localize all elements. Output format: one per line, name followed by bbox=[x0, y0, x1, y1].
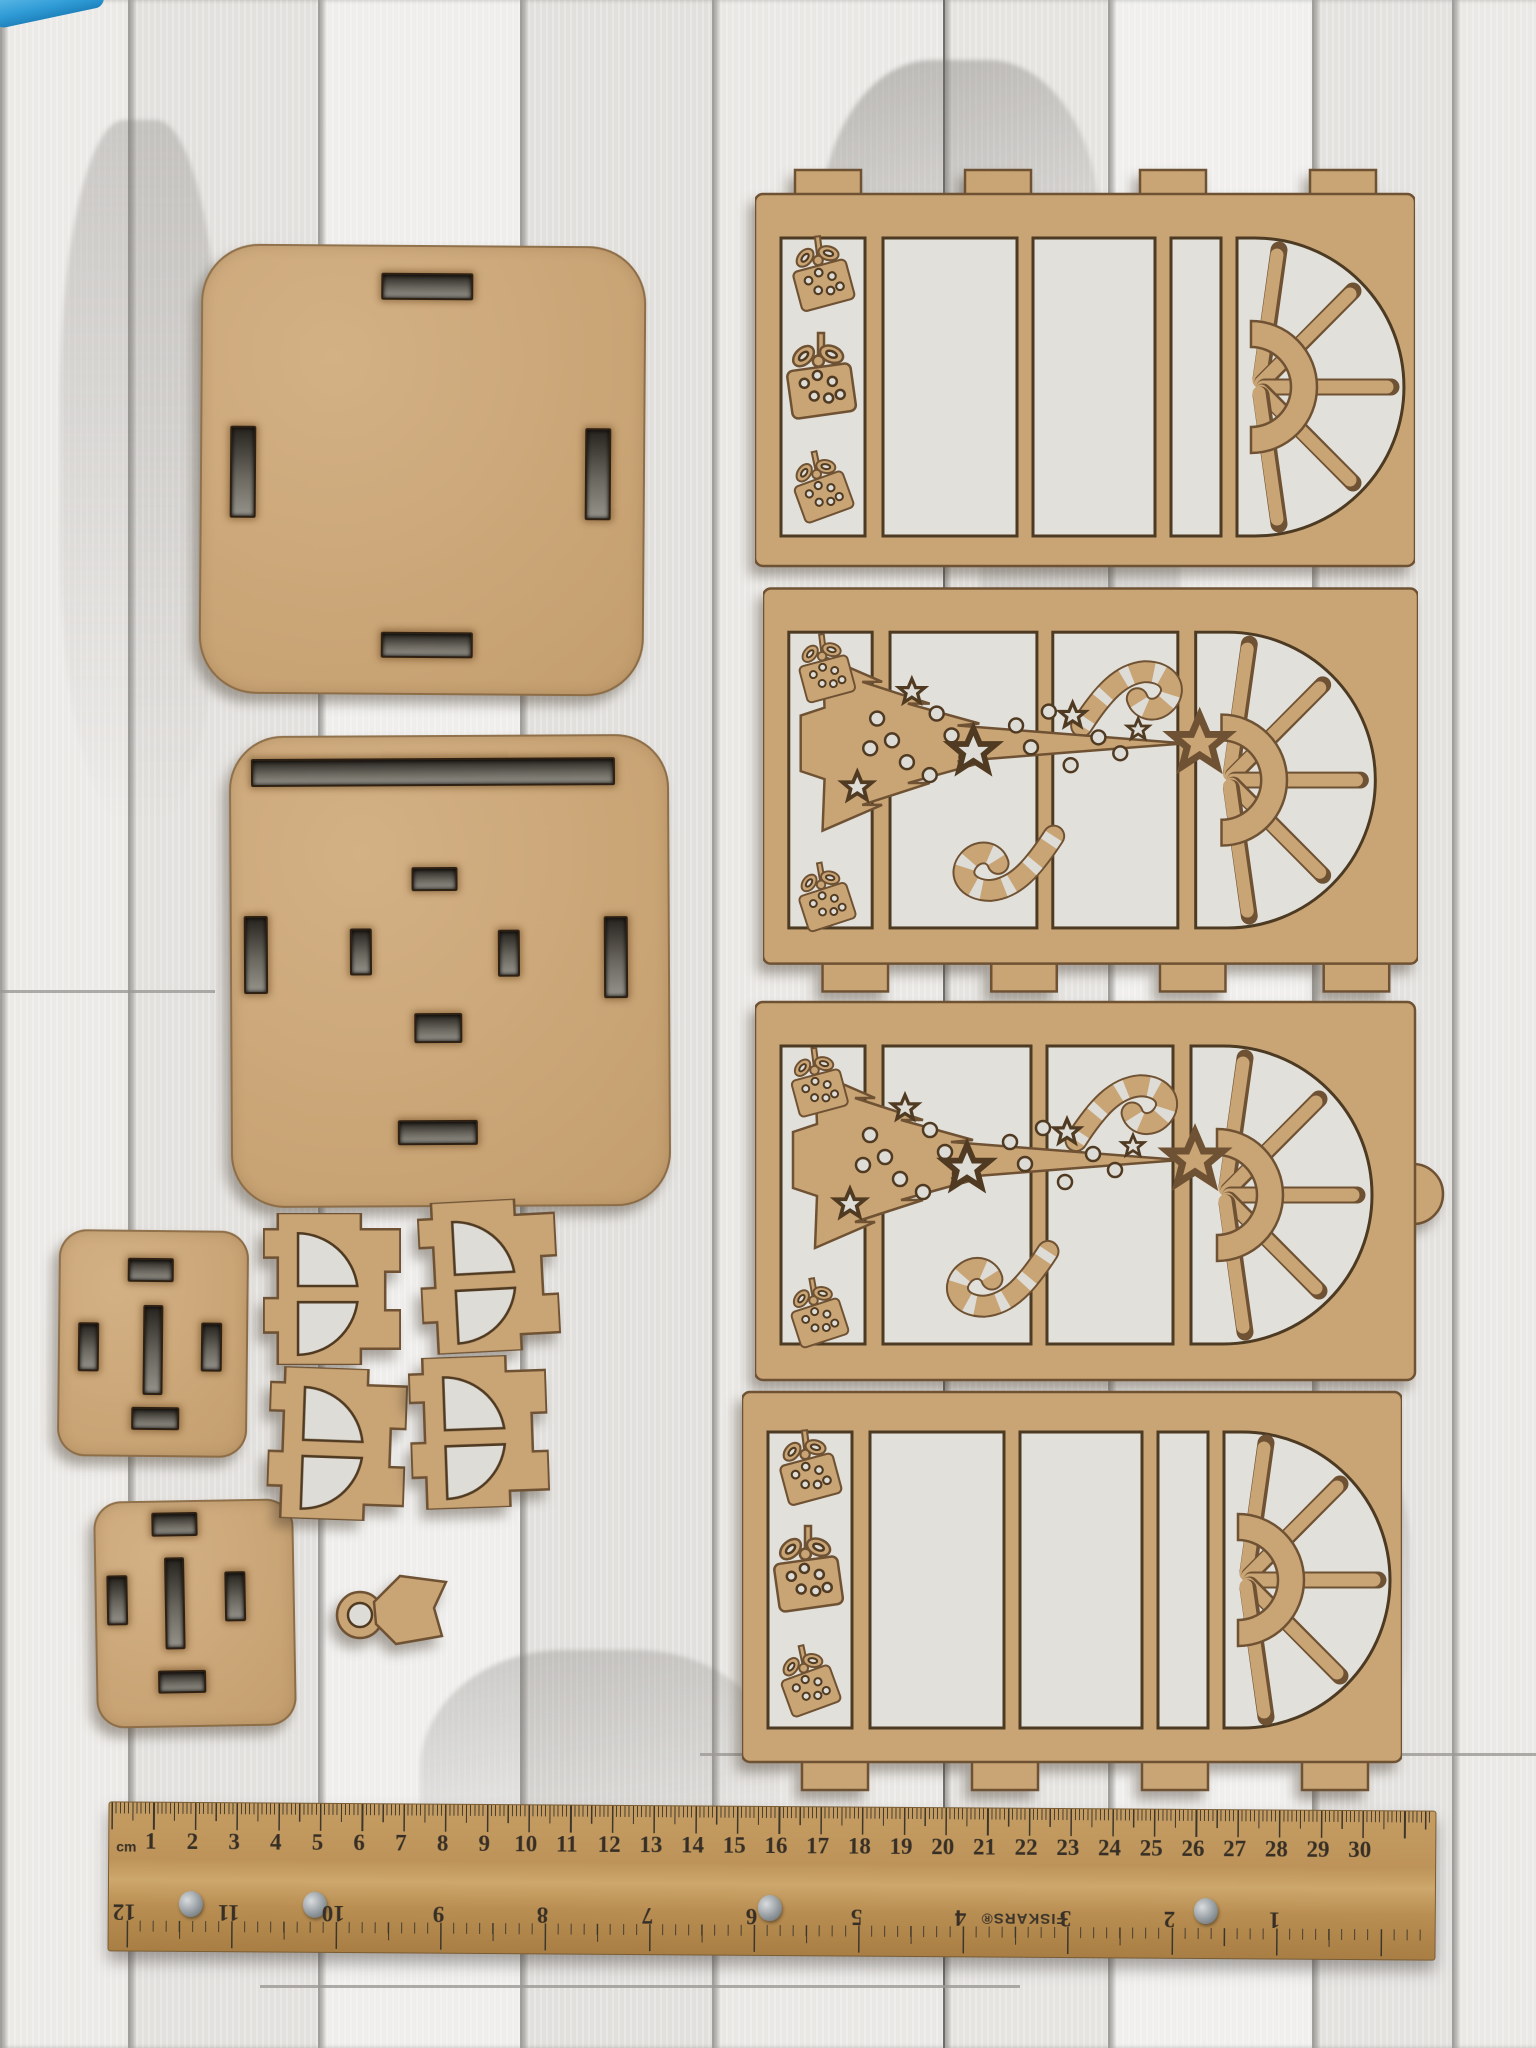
ruler-cm-number: 14 bbox=[681, 1832, 704, 1858]
arch-bracket-4 bbox=[407, 1354, 550, 1511]
large-slotted-backboard bbox=[198, 243, 646, 696]
ring-tag-piece bbox=[330, 1560, 455, 1650]
ruler-cm-number: 11 bbox=[556, 1831, 578, 1857]
ruler-cm-number: 30 bbox=[1348, 1837, 1371, 1863]
ruler-inch-number: 10 bbox=[322, 1900, 345, 1926]
ruler-cm-number: 12 bbox=[598, 1832, 621, 1858]
slot bbox=[201, 1323, 223, 1372]
ruler-inch-number: 8 bbox=[537, 1901, 549, 1927]
ruler-cm-number: 6 bbox=[353, 1830, 365, 1856]
slot bbox=[604, 916, 628, 998]
ruler-cm-number: 10 bbox=[514, 1831, 537, 1857]
wood-plank bbox=[1452, 0, 1536, 2048]
ruler-cm-number: 21 bbox=[973, 1834, 996, 1860]
window-panel-tree-1 bbox=[763, 583, 1418, 995]
slot bbox=[78, 1322, 100, 1371]
ruler-cm-number: 13 bbox=[639, 1832, 662, 1858]
small-slotted-square-bottom bbox=[93, 1498, 297, 1728]
slot bbox=[398, 1120, 478, 1145]
slot bbox=[381, 632, 473, 659]
ruler-cm-number: 17 bbox=[806, 1833, 829, 1859]
ruler-cm-number: 15 bbox=[723, 1833, 746, 1859]
slot bbox=[230, 426, 257, 518]
ruler-cm-number: 16 bbox=[764, 1833, 787, 1859]
ruler-inch-number: 5 bbox=[850, 1904, 862, 1930]
slot bbox=[244, 916, 268, 994]
slot bbox=[142, 1305, 163, 1395]
photo-scene: cm 1234567891011121314151617181920212223… bbox=[0, 0, 1536, 2048]
ruler-cm-number: 8 bbox=[437, 1831, 449, 1857]
small-slotted-square-top bbox=[57, 1229, 249, 1458]
arch-bracket-3 bbox=[265, 1366, 408, 1523]
slot bbox=[411, 867, 457, 891]
ruler-cm-number: 26 bbox=[1181, 1836, 1204, 1862]
ruler-rivet bbox=[1194, 1898, 1218, 1924]
ruler-cm-number: 7 bbox=[395, 1830, 407, 1856]
ruler-cm-number: 27 bbox=[1223, 1836, 1246, 1862]
ruler-cm-number: 28 bbox=[1265, 1836, 1288, 1862]
ruler-cm-number: 25 bbox=[1140, 1836, 1163, 1862]
ruler-cm-number: 4 bbox=[270, 1829, 282, 1855]
ruler-rivet bbox=[179, 1891, 203, 1917]
slot bbox=[158, 1670, 206, 1694]
ruler-inch-number: 11 bbox=[217, 1899, 239, 1925]
slot bbox=[224, 1571, 246, 1621]
slot bbox=[151, 1512, 197, 1537]
ruler-unit-label: cm bbox=[116, 1838, 136, 1854]
window-panel-gifts bbox=[755, 168, 1415, 580]
plank-seam bbox=[0, 990, 215, 993]
slotted-base-panel bbox=[229, 734, 671, 1208]
plank-seam bbox=[260, 1985, 1020, 1988]
ruler-cm-number: 19 bbox=[889, 1834, 912, 1860]
slot bbox=[350, 928, 372, 975]
ruler-inch-number: 12 bbox=[113, 1898, 136, 1924]
slot bbox=[131, 1407, 179, 1431]
window-panel-tree-2 bbox=[755, 998, 1445, 1398]
slot bbox=[251, 757, 615, 787]
ruler-cm-number: 20 bbox=[931, 1834, 954, 1860]
ruler-cm-number: 23 bbox=[1056, 1835, 1079, 1861]
ruler-inch-number: 9 bbox=[432, 1901, 444, 1927]
wooden-ruler: cm 1234567891011121314151617181920212223… bbox=[107, 1801, 1436, 1960]
ruler-cm-number: 5 bbox=[312, 1830, 324, 1856]
slot bbox=[381, 273, 473, 301]
window-panel-gifts-bottom bbox=[742, 1388, 1402, 1792]
ruler-cm-number: 1 bbox=[145, 1829, 157, 1855]
slot bbox=[128, 1258, 174, 1282]
arch-bracket-1 bbox=[263, 1213, 401, 1365]
ruler-cm-number: 18 bbox=[848, 1834, 871, 1860]
ruler-cm-number: 24 bbox=[1098, 1835, 1121, 1861]
slot bbox=[164, 1557, 186, 1649]
slot bbox=[106, 1575, 128, 1625]
ruler-cm-number: 29 bbox=[1306, 1837, 1329, 1863]
arch-bracket-2 bbox=[416, 1196, 562, 1355]
ruler-inch-number: 7 bbox=[641, 1902, 653, 1928]
wood-plank bbox=[0, 0, 130, 2048]
ruler-cm-number: 3 bbox=[228, 1829, 240, 1855]
slot bbox=[585, 428, 612, 520]
ruler-inch-number: 4 bbox=[955, 1904, 967, 1930]
ruler-cm-number: 9 bbox=[478, 1831, 490, 1857]
ruler-cm-number: 2 bbox=[187, 1829, 199, 1855]
ruler-inch-number: 2 bbox=[1164, 1906, 1176, 1932]
ruler-brand-label: FISKARS® bbox=[981, 1909, 1066, 1927]
ruler-cm-number: 22 bbox=[1015, 1835, 1038, 1861]
slot bbox=[414, 1013, 462, 1043]
ruler-inch-number: 6 bbox=[746, 1903, 758, 1929]
slot bbox=[498, 930, 520, 977]
ruler-inch-number: 1 bbox=[1268, 1906, 1280, 1932]
ruler-rivet bbox=[758, 1895, 782, 1921]
